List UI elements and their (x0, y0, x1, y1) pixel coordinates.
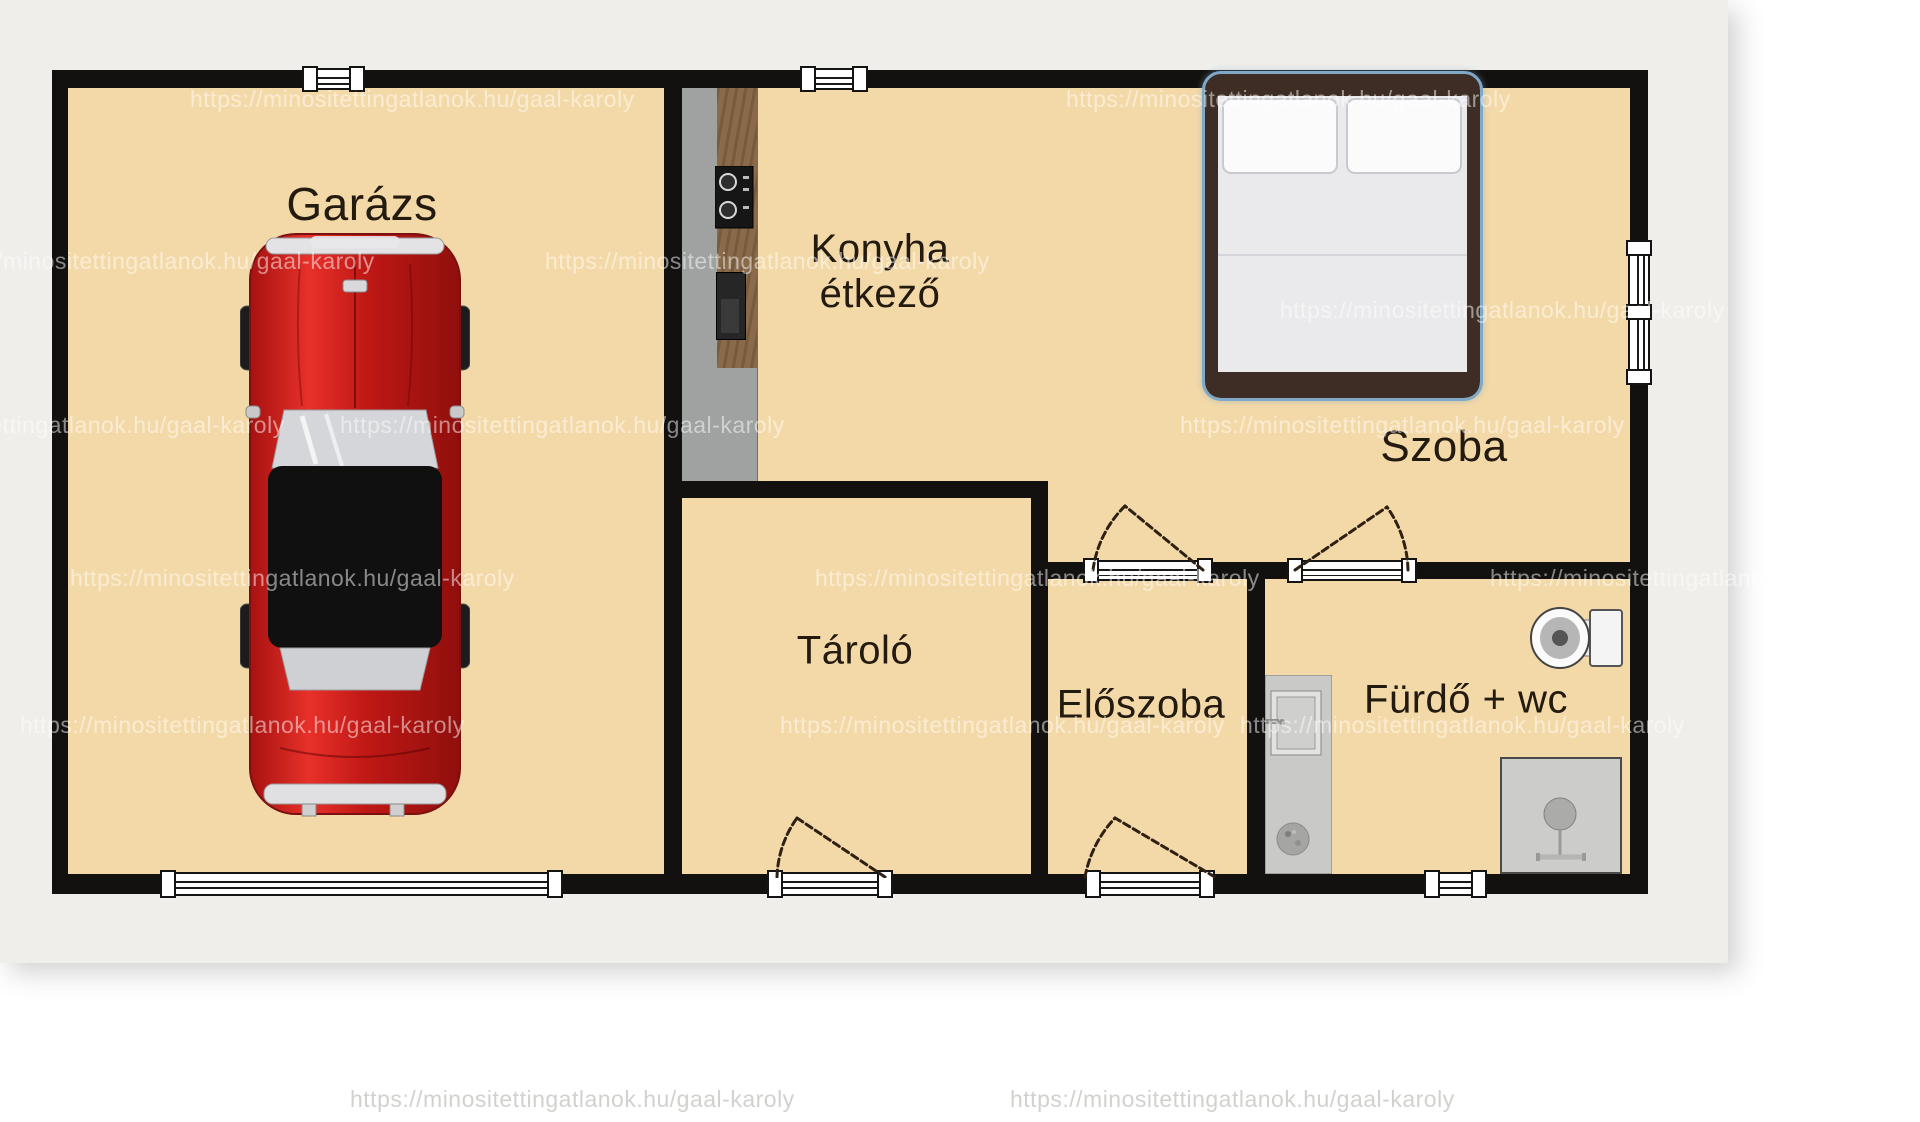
window-cap (302, 66, 318, 92)
label-kitchen-line1: Konyha (811, 227, 950, 272)
window-top-kitchen (800, 68, 868, 90)
wall-garage-kitchen (664, 88, 682, 874)
window-cap (547, 870, 563, 898)
label-bedroom: Szoba (1380, 422, 1507, 472)
window-cap (1471, 870, 1487, 898)
label-garage: Garázs (286, 177, 437, 231)
window-bottom-bath (1424, 872, 1487, 896)
wall-storage-hall (1031, 498, 1048, 874)
door-panes (771, 877, 889, 891)
toilet-icon (1528, 604, 1628, 674)
shower-icon (1500, 757, 1622, 874)
bed-blanket-seam (1218, 254, 1467, 256)
oven-icon (716, 272, 746, 340)
wall-outer-right (1630, 70, 1648, 894)
window-right-bedroom (1628, 240, 1650, 385)
car-icon (240, 228, 470, 820)
wall-outer-left (52, 70, 68, 894)
wall-hall-bath (1247, 579, 1265, 874)
label-kitchen: Konyha étkező (811, 227, 950, 317)
door-arc-bath-upper (1285, 492, 1420, 582)
washbasin-icon (1265, 675, 1332, 874)
door-arc-hall-upper (1070, 492, 1220, 582)
bed-pillow (1222, 98, 1338, 174)
door-arc-hall-entry (1080, 806, 1225, 878)
window-cap (160, 870, 176, 898)
kitchen-counter-icon (682, 88, 758, 484)
bed-pillow (1346, 98, 1462, 174)
wall-upper-hall-b (1213, 562, 1287, 579)
window-cap (1626, 369, 1652, 385)
stove-icon (715, 166, 755, 230)
label-bath: Fürdő + wc (1364, 678, 1568, 723)
window-cap (852, 66, 868, 92)
window-garage-door (160, 872, 563, 896)
label-storage: Tároló (797, 629, 913, 674)
watermark-text: https://minositettingatlanok.hu/gaal-kar… (350, 1086, 795, 1113)
wall-upper-bath (1417, 562, 1630, 579)
window-top-garage (302, 68, 365, 90)
bed-icon (1205, 74, 1480, 398)
window-cap (1626, 240, 1652, 256)
window-cap (1626, 304, 1652, 320)
door-arc-storage (770, 806, 895, 878)
watermark-text: https://minositettingatlanok.hu/gaal-kar… (1010, 1086, 1455, 1113)
door-panes (1089, 877, 1211, 891)
window-panes (164, 877, 559, 891)
window-cap (349, 66, 365, 92)
window-cap (800, 66, 816, 92)
window-cap (1424, 870, 1440, 898)
oven-door (721, 299, 739, 333)
label-hall: Előszoba (1057, 683, 1226, 728)
label-kitchen-line2: étkező (811, 272, 950, 317)
wall-kitchen-storage (682, 481, 1048, 498)
